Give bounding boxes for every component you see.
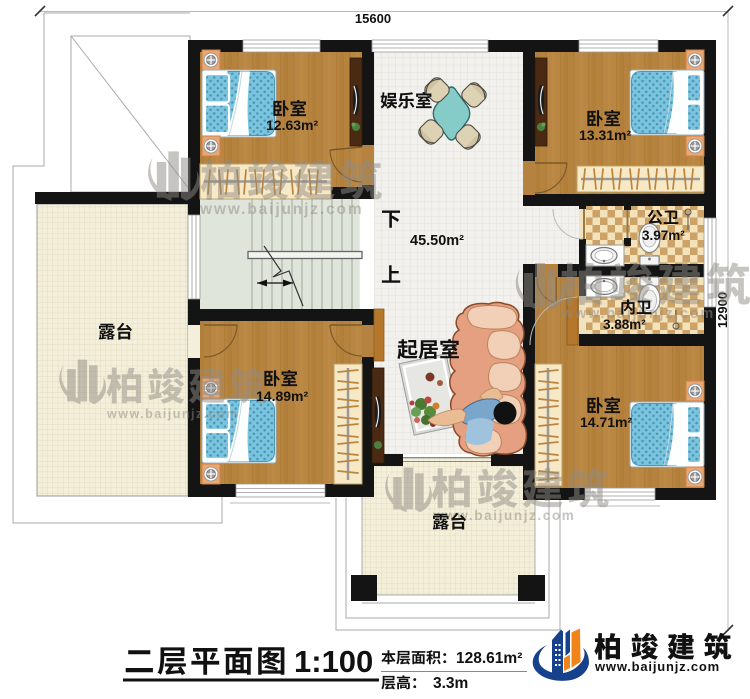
svg-text:128.61m²: 128.61m² [456,650,522,667]
svg-text:45.50m²: 45.50m² [410,233,464,249]
svg-text:14.71m²: 14.71m² [580,414,632,430]
svg-text:www.baijunjz.com: www.baijunjz.com [432,508,575,523]
svg-text:13.31m²: 13.31m² [579,127,631,143]
svg-text:14.89m²: 14.89m² [256,388,308,404]
svg-text:www.baijunjz.com: www.baijunjz.com [199,201,364,218]
svg-text:1:100: 1:100 [294,644,373,679]
svg-text:3.88m²: 3.88m² [603,317,646,332]
svg-text:www.baijunjz.com: www.baijunjz.com [594,659,720,674]
svg-text:3.97m²: 3.97m² [642,228,685,243]
svg-text:12.63m²: 12.63m² [266,117,318,133]
svg-text:15600: 15600 [355,11,391,26]
svg-text:3.3m: 3.3m [433,675,468,692]
svg-text:www.baijunjz.com: www.baijunjz.com [106,407,239,421]
